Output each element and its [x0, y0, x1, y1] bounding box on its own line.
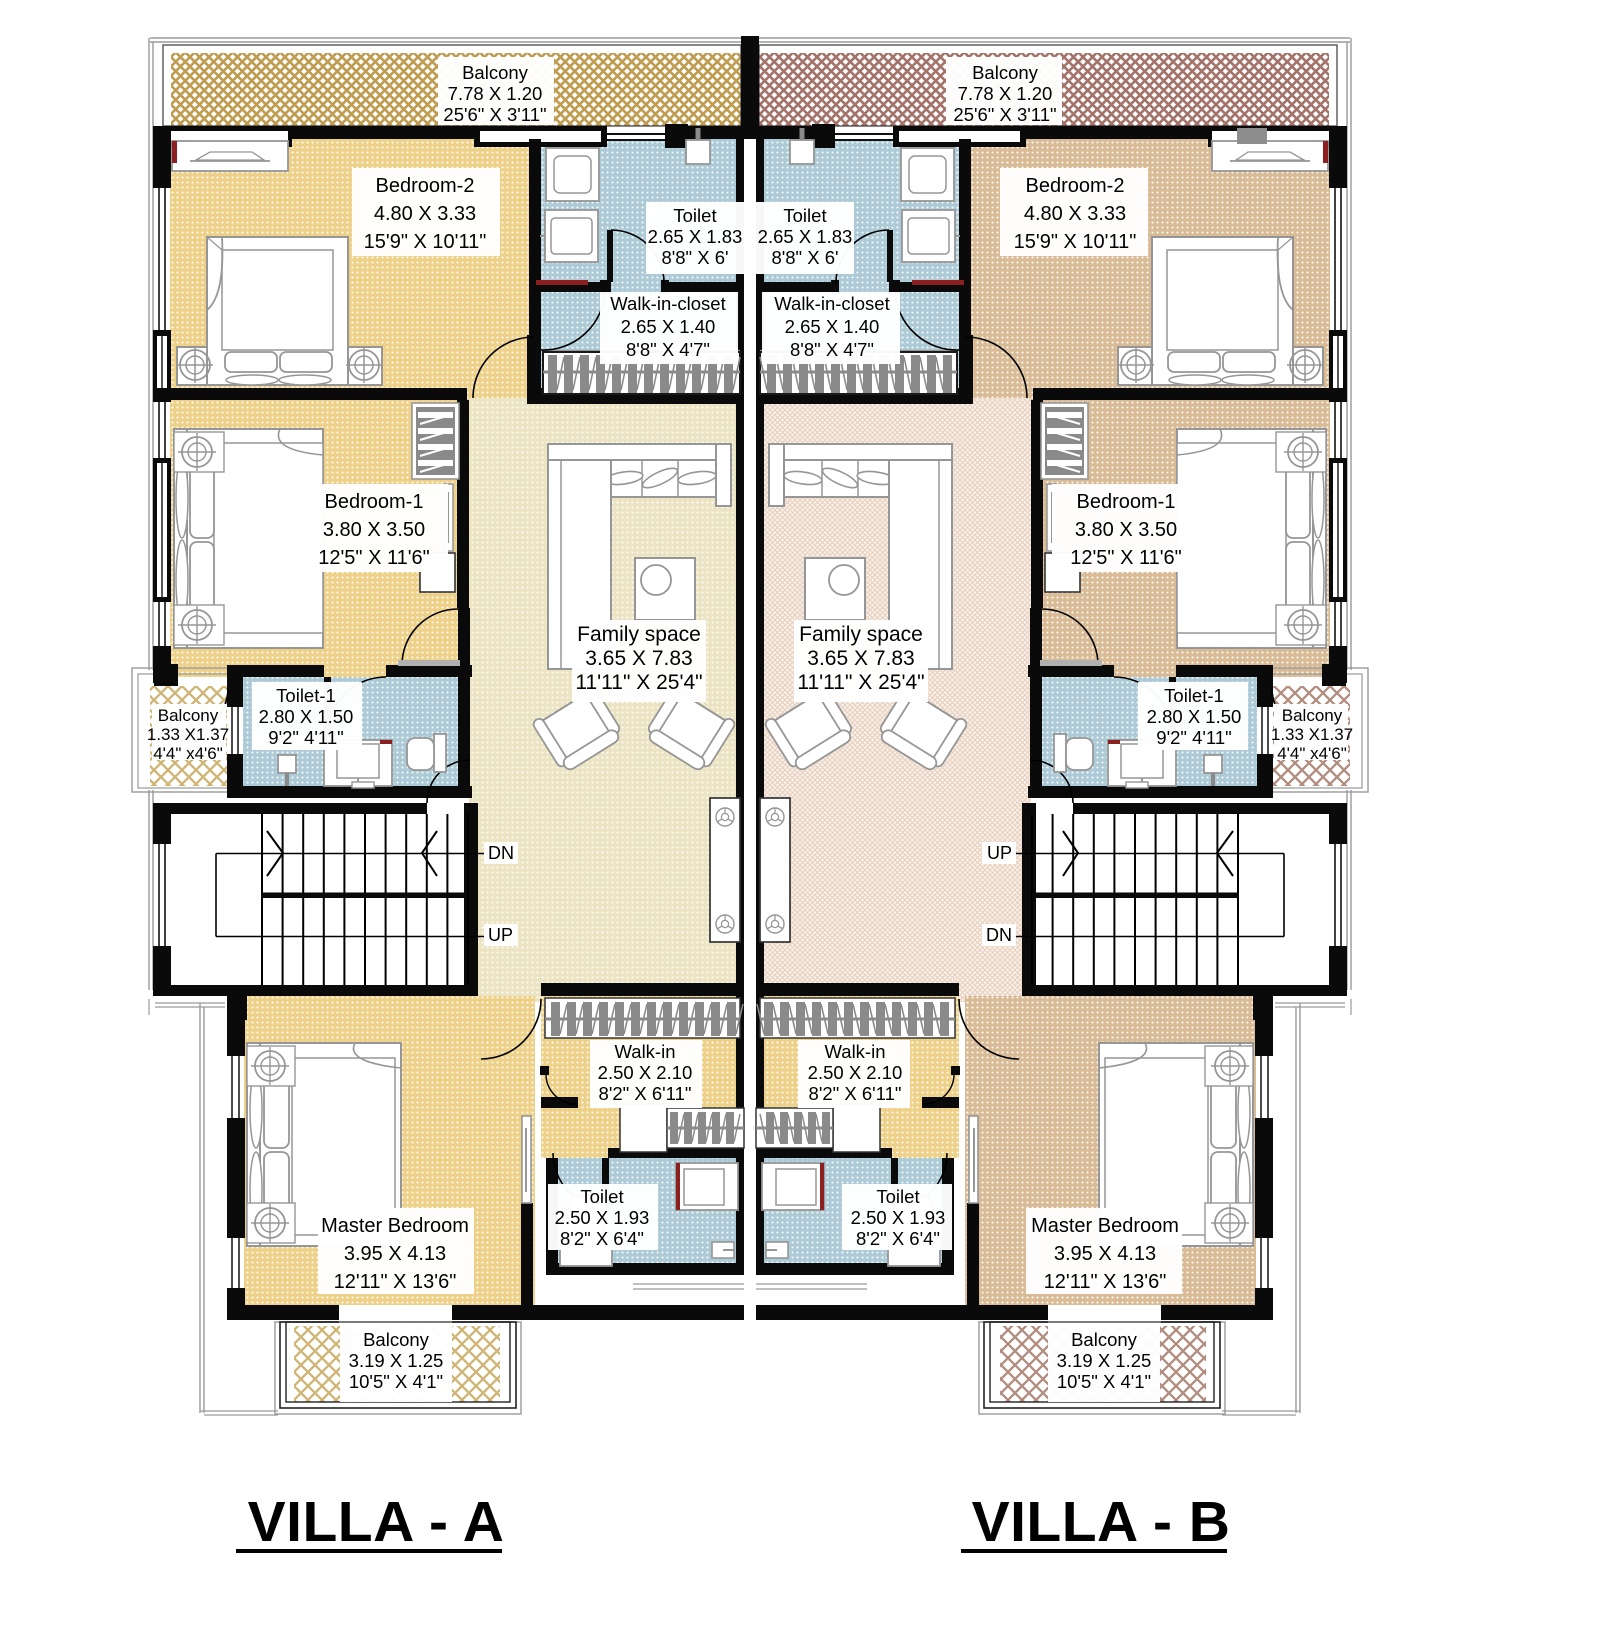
svg-text:Family space: Family space	[577, 623, 701, 646]
svg-text:Walk-in-closet: Walk-in-closet	[774, 293, 889, 314]
svg-text:8'2" X 6'11": 8'2" X 6'11"	[809, 1083, 902, 1104]
svg-text:2.80 X 1.50: 2.80 X 1.50	[259, 706, 354, 727]
svg-text:DN: DN	[488, 843, 514, 863]
svg-text:2.50 X 1.93: 2.50 X 1.93	[555, 1207, 650, 1228]
svg-text:Balcony: Balcony	[1071, 1329, 1138, 1350]
svg-text:8'8" X 4'7": 8'8" X 4'7"	[626, 339, 710, 360]
svg-text:3.19 X 1.25: 3.19 X 1.25	[1057, 1350, 1152, 1371]
svg-text:Walk-in: Walk-in	[615, 1041, 676, 1062]
svg-text:15'9" X 10'11": 15'9" X 10'11"	[1014, 231, 1137, 253]
svg-text:4'4" x4'6": 4'4" x4'6"	[1277, 744, 1347, 763]
svg-text:3.65 X 7.83: 3.65 X 7.83	[585, 647, 692, 670]
svg-text:8'2" X 6'4": 8'2" X 6'4"	[560, 1228, 644, 1249]
svg-text:Bedroom-2: Bedroom-2	[376, 175, 475, 197]
svg-text:Balcony: Balcony	[363, 1329, 430, 1350]
svg-text:Family space: Family space	[799, 623, 923, 646]
svg-text:1.33 X1.37: 1.33 X1.37	[1271, 725, 1353, 744]
svg-text:3.95 X 4.13: 3.95 X 4.13	[1054, 1243, 1156, 1265]
svg-text:3.95 X 4.13: 3.95 X 4.13	[344, 1243, 446, 1265]
svg-text:15'9" X 10'11": 15'9" X 10'11"	[364, 231, 487, 253]
svg-text:Walk-in: Walk-in	[825, 1041, 886, 1062]
svg-text:11'11" X 25'4": 11'11" X 25'4"	[575, 671, 702, 694]
svg-text:3.19 X 1.25: 3.19 X 1.25	[349, 1350, 444, 1371]
svg-text:Balcony: Balcony	[972, 62, 1039, 83]
svg-text:2.50 X 2.10: 2.50 X 2.10	[808, 1062, 903, 1083]
svg-text:3.80 X 3.50: 3.80 X 3.50	[323, 519, 425, 541]
svg-text:Toilet-1: Toilet-1	[1164, 685, 1224, 706]
svg-text:4.80 X 3.33: 4.80 X 3.33	[374, 203, 476, 225]
svg-text:8'8" X 4'7": 8'8" X 4'7"	[790, 339, 874, 360]
svg-text:UP: UP	[488, 925, 513, 945]
svg-text:25'6" X 3'11": 25'6" X 3'11"	[953, 104, 1056, 125]
svg-text:3.80 X 3.50: 3.80 X 3.50	[1075, 519, 1177, 541]
svg-text:Bedroom-2: Bedroom-2	[1026, 175, 1125, 197]
svg-text:4'4" x4'6": 4'4" x4'6"	[153, 744, 223, 763]
svg-text:Toilet: Toilet	[580, 1186, 623, 1207]
svg-text:8'2" X 6'11": 8'2" X 6'11"	[599, 1083, 692, 1104]
svg-text:4.80 X 3.33: 4.80 X 3.33	[1024, 203, 1126, 225]
svg-text:10'5" X 4'1": 10'5" X 4'1"	[349, 1371, 443, 1392]
svg-text:Balcony: Balcony	[158, 706, 219, 725]
svg-text:2.65 X 1.83: 2.65 X 1.83	[758, 226, 853, 247]
svg-text:2.65 X 1.40: 2.65 X 1.40	[785, 316, 880, 337]
svg-text:3.65 X 7.83: 3.65 X 7.83	[807, 647, 914, 670]
svg-text:12'5" X 11'6": 12'5" X 11'6"	[1070, 547, 1182, 569]
svg-text:8'8" X 6': 8'8" X 6'	[771, 247, 838, 268]
svg-text:7.78 X 1.20: 7.78 X 1.20	[958, 83, 1053, 104]
svg-text:8'8" X 6': 8'8" X 6'	[661, 247, 728, 268]
svg-text:Walk-in-closet: Walk-in-closet	[610, 293, 725, 314]
svg-text:25'6" X 3'11": 25'6" X 3'11"	[443, 104, 546, 125]
svg-text:Bedroom-1: Bedroom-1	[1077, 491, 1176, 513]
svg-text:12'11" X 13'6": 12'11" X 13'6"	[1044, 1271, 1167, 1293]
svg-text:12'5" X 11'6": 12'5" X 11'6"	[318, 547, 430, 569]
svg-text:8'2" X 6'4": 8'2" X 6'4"	[856, 1228, 940, 1249]
svg-text:9'2" 4'11": 9'2" 4'11"	[268, 727, 343, 748]
svg-text:Bedroom-1: Bedroom-1	[325, 491, 424, 513]
svg-text:Balcony: Balcony	[1282, 706, 1343, 725]
svg-text:Master Bedroom: Master Bedroom	[321, 1215, 469, 1237]
svg-text:1.33 X1.37: 1.33 X1.37	[147, 725, 229, 744]
svg-text:UP: UP	[987, 843, 1012, 863]
svg-text:9'2" 4'11": 9'2" 4'11"	[1156, 727, 1231, 748]
svg-text:VILLA - B: VILLA - B	[972, 1490, 1231, 1554]
svg-text:7.78 X 1.20: 7.78 X 1.20	[448, 83, 543, 104]
svg-text:Toilet-1: Toilet-1	[276, 685, 336, 706]
svg-text:Toilet: Toilet	[876, 1186, 919, 1207]
svg-text:2.80 X 1.50: 2.80 X 1.50	[1147, 706, 1242, 727]
svg-text:Master Bedroom: Master Bedroom	[1031, 1215, 1179, 1237]
svg-text:DN: DN	[986, 925, 1012, 945]
svg-text:Toilet: Toilet	[783, 205, 826, 226]
svg-text:10'5" X 4'1": 10'5" X 4'1"	[1057, 1371, 1151, 1392]
svg-text:2.65 X 1.40: 2.65 X 1.40	[621, 316, 716, 337]
svg-text:VILLA - A: VILLA - A	[248, 1490, 505, 1554]
svg-text:11'11" X 25'4": 11'11" X 25'4"	[797, 671, 924, 694]
svg-text:Balcony: Balcony	[462, 62, 529, 83]
svg-text:12'11" X 13'6": 12'11" X 13'6"	[334, 1271, 457, 1293]
svg-text:2.65 X 1.83: 2.65 X 1.83	[648, 226, 743, 247]
svg-text:Toilet: Toilet	[673, 205, 716, 226]
svg-text:2.50 X 1.93: 2.50 X 1.93	[851, 1207, 946, 1228]
svg-text:2.50 X 2.10: 2.50 X 2.10	[598, 1062, 693, 1083]
